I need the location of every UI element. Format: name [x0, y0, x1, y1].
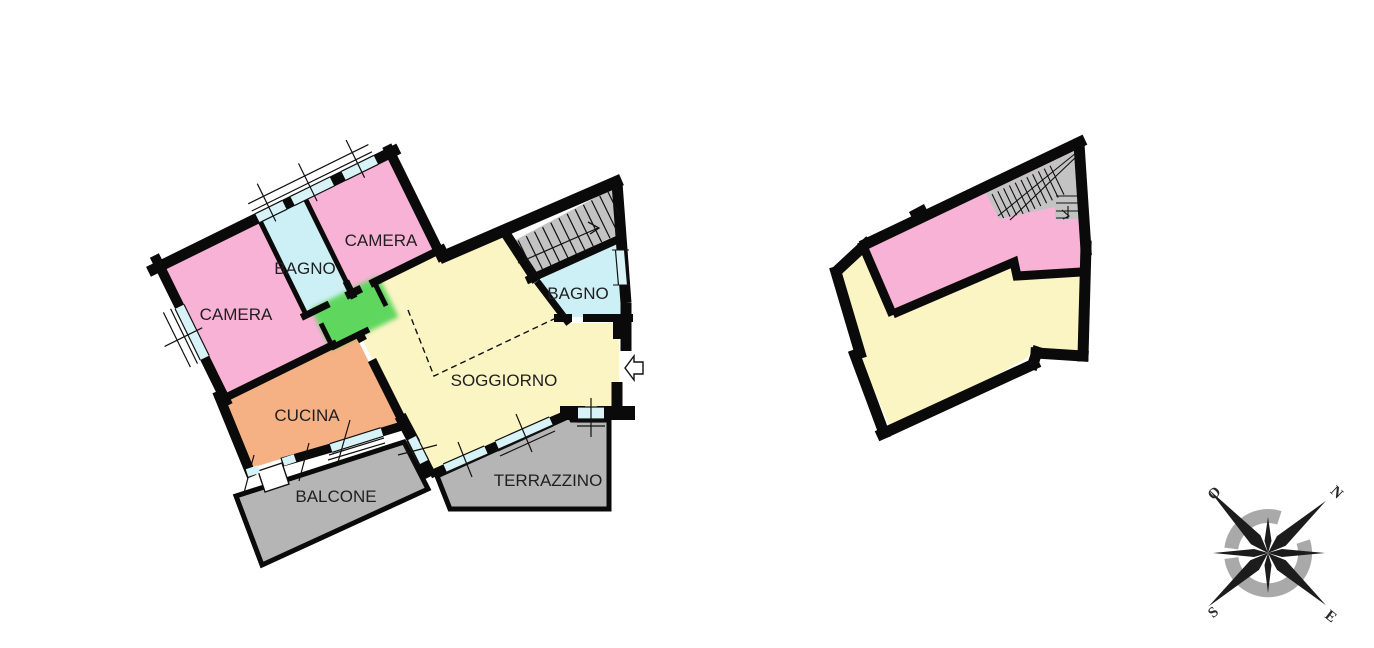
svg-text:CAMERA: CAMERA [200, 305, 273, 324]
svg-text:BAGNO: BAGNO [274, 259, 335, 278]
svg-text:TERRAZZINO: TERRAZZINO [494, 471, 603, 490]
svg-text:CUCINA: CUCINA [274, 406, 340, 425]
svg-text:BALCONE: BALCONE [295, 487, 376, 506]
svg-text:BAGNO: BAGNO [547, 284, 608, 303]
svg-text:SOGGIORNO: SOGGIORNO [451, 371, 558, 390]
svg-text:CAMERA: CAMERA [345, 231, 418, 250]
